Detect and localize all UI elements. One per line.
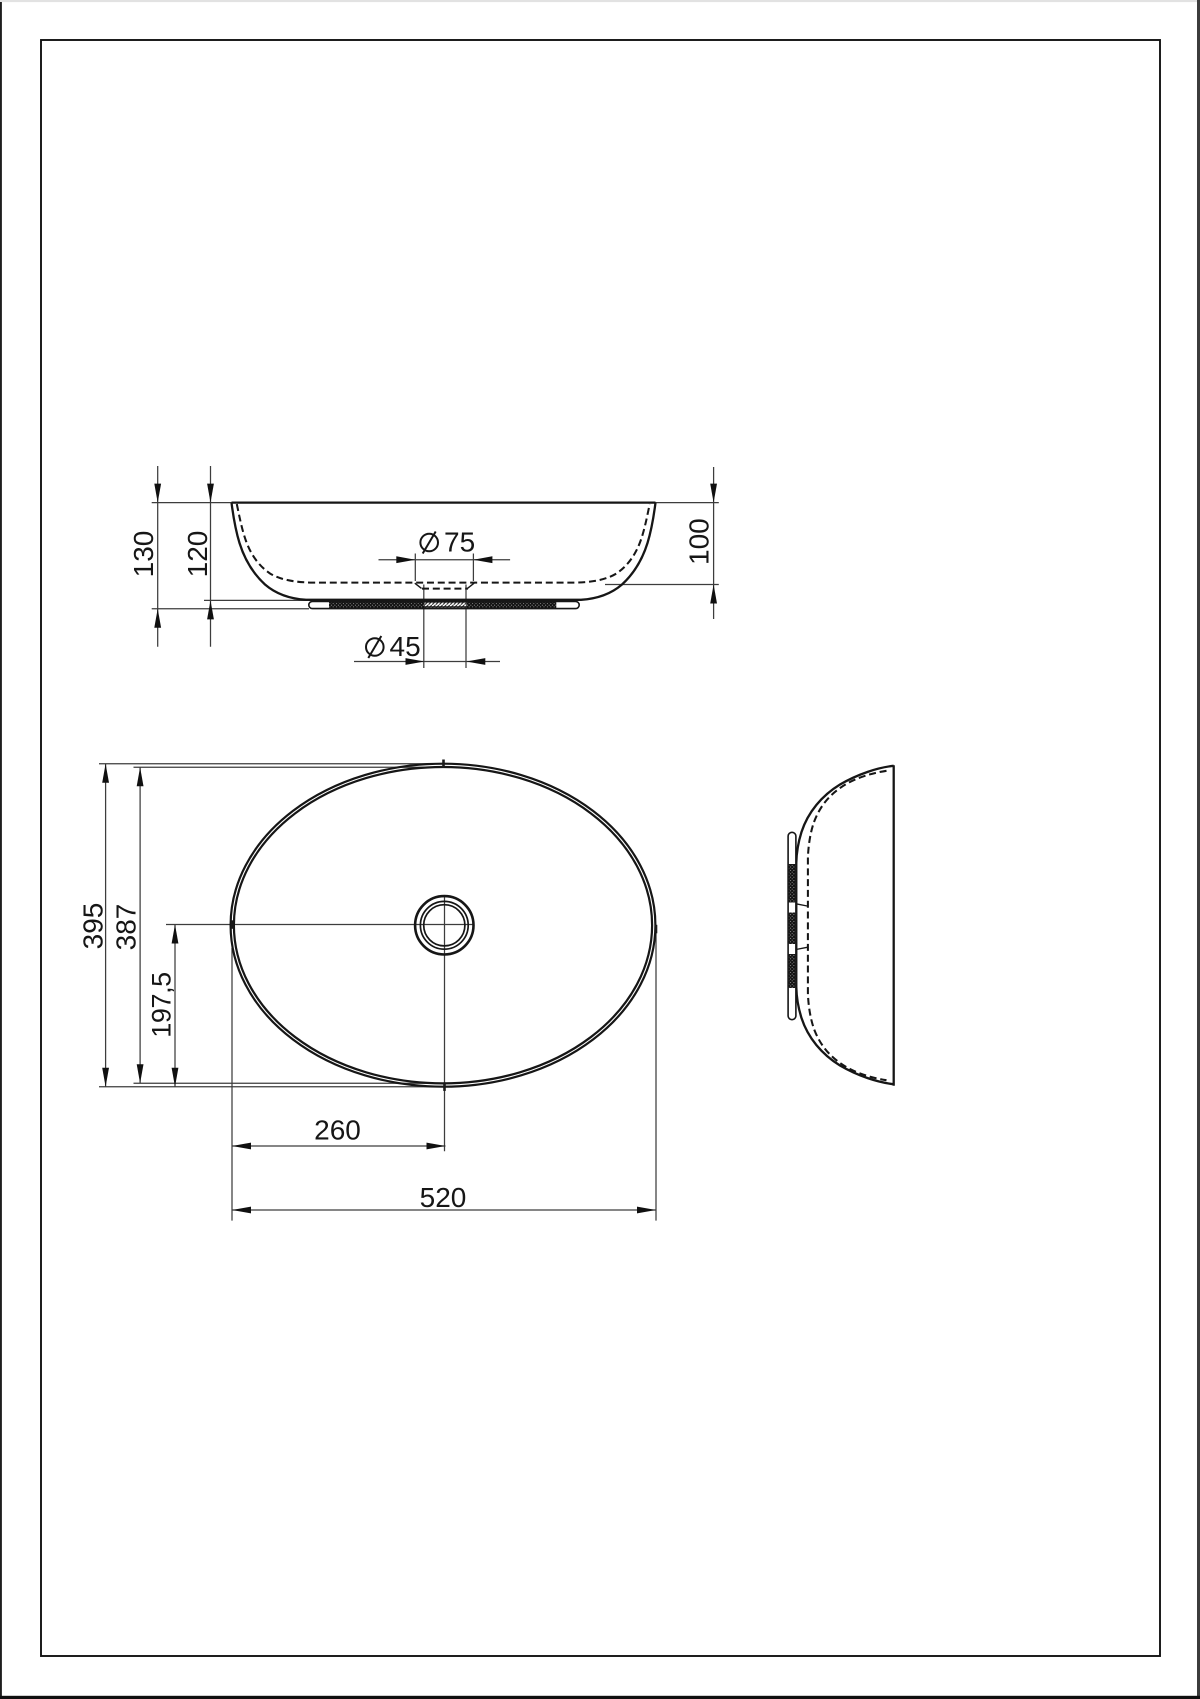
svg-text:45: 45 (390, 631, 421, 662)
svg-text:520: 520 (420, 1182, 467, 1213)
svg-text:387: 387 (111, 904, 142, 951)
svg-text:395: 395 (77, 903, 108, 950)
svg-text:197,5: 197,5 (147, 972, 177, 1038)
svg-text:75: 75 (444, 527, 475, 558)
svg-text:130: 130 (128, 531, 159, 578)
svg-text:100: 100 (684, 518, 715, 565)
svg-text:120: 120 (182, 531, 213, 578)
svg-text:260: 260 (314, 1115, 361, 1146)
